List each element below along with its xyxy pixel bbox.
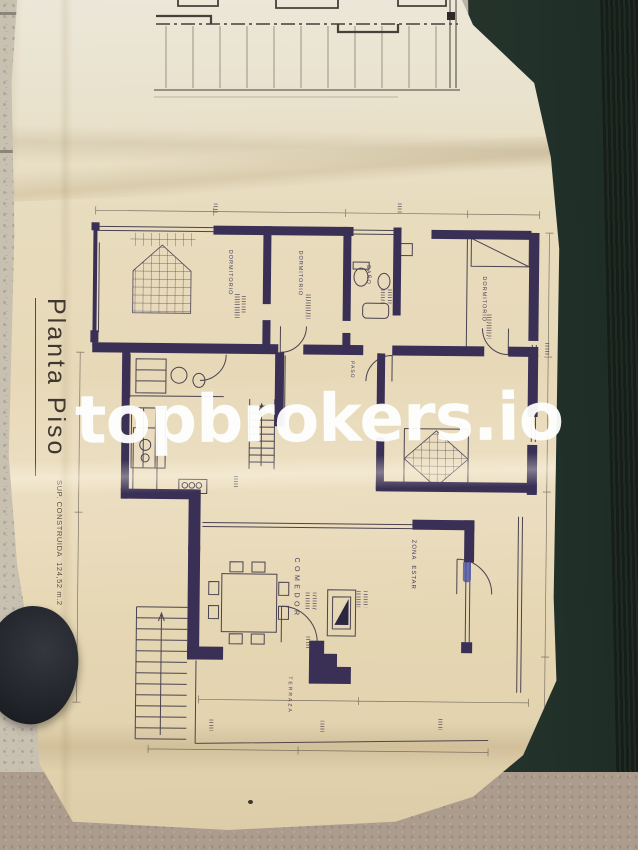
room-label-terraza: TERRAZA [286, 676, 293, 724]
faux-text [320, 721, 324, 732]
room-label-dormitorio-mid: DORMITORIO [297, 250, 303, 290]
terrace-steps [309, 641, 351, 684]
watermark: topbrokers.io [0, 380, 638, 458]
faux-text [388, 289, 392, 303]
faux-text [214, 204, 218, 214]
pen-mark [463, 560, 471, 582]
room-label-bano: BAÑO [365, 265, 371, 289]
faux-text [364, 591, 368, 607]
floor-plan: DORMITORIO DORMITORIO DORMITORIO BAÑO PA… [57, 182, 564, 819]
roof-plan-mark [447, 12, 455, 20]
room-label-dormitorio-right: DORMITORIO [481, 276, 487, 316]
faux-text [306, 637, 310, 649]
faux-text [306, 295, 311, 319]
faux-text [235, 294, 240, 318]
room-label-paso: PASO [349, 361, 355, 381]
faux-text [438, 719, 442, 730]
paper-speck [248, 800, 253, 804]
plan-linework [57, 182, 564, 819]
hatch-left-room [133, 245, 192, 314]
faux-text [313, 593, 317, 611]
faux-text [306, 593, 310, 611]
faux-text [381, 289, 385, 303]
room-label-comedor: COMEDOR [292, 557, 300, 643]
fireplace [334, 599, 348, 625]
tile-grout-line [0, 12, 18, 15]
room-label-dormitorio-left: DORMITORIO [227, 250, 233, 290]
faux-text [209, 720, 213, 731]
upper-sheet-roof-plan [148, 0, 470, 112]
faux-text [545, 343, 549, 355]
photo-scene: Planta Piso SUP. CONSTRUIDA 124,52 m.2 [0, 0, 638, 850]
room-label-zona-estar: ZONA ESTAR [410, 540, 417, 602]
faux-text [398, 203, 402, 213]
faux-text [486, 314, 491, 338]
faux-text [357, 591, 361, 607]
faux-text [234, 476, 238, 488]
hatch-strip [130, 233, 195, 247]
faux-text [242, 296, 246, 314]
stairs-lower [135, 607, 187, 740]
